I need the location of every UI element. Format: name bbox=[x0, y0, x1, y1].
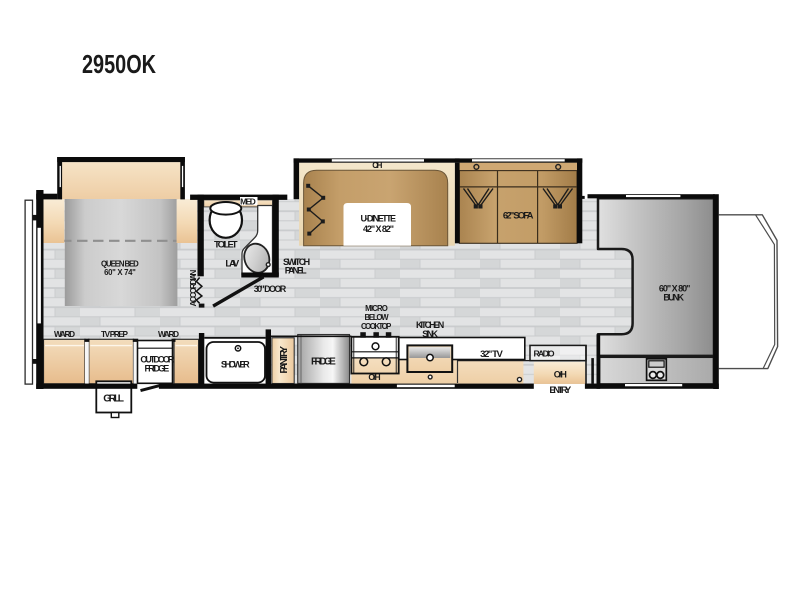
svg-text:FRIDGE: FRIDGE bbox=[311, 357, 336, 368]
svg-text:MED: MED bbox=[240, 197, 256, 207]
svg-text:GRILL: GRILL bbox=[103, 394, 124, 405]
svg-text:PANTRY: PANTRY bbox=[279, 346, 290, 374]
svg-text:COOKTOP: COOKTOP bbox=[361, 322, 391, 331]
svg-text:RADIO: RADIO bbox=[534, 348, 555, 358]
svg-text:BELOW: BELOW bbox=[364, 313, 389, 322]
svg-text:2950OK: 2950OK bbox=[82, 51, 156, 79]
svg-text:ACCORDIAN: ACCORDIAN bbox=[189, 269, 198, 306]
svg-text:O/H: O/H bbox=[554, 369, 567, 379]
svg-text:WARD: WARD bbox=[158, 330, 179, 339]
svg-text:LAV: LAV bbox=[225, 259, 240, 270]
svg-text:SHOWER: SHOWER bbox=[221, 360, 250, 370]
svg-text:MICRO: MICRO bbox=[365, 304, 388, 313]
svg-text:FRIDGE: FRIDGE bbox=[145, 364, 170, 374]
svg-text:ENTRY: ENTRY bbox=[549, 385, 572, 396]
svg-text:62" SOFA: 62" SOFA bbox=[503, 211, 534, 222]
svg-text:WARD: WARD bbox=[54, 330, 75, 339]
svg-text:42" X 82": 42" X 82" bbox=[363, 224, 394, 234]
svg-text:30" DOOR: 30" DOOR bbox=[254, 284, 287, 294]
svg-text:O/H: O/H bbox=[368, 372, 380, 382]
svg-text:O/H: O/H bbox=[372, 161, 382, 170]
svg-text:TOILET: TOILET bbox=[214, 239, 238, 250]
svg-text:SINK: SINK bbox=[422, 329, 438, 339]
svg-text:U-DINETTE: U-DINETTE bbox=[361, 214, 397, 224]
svg-text:32" TV: 32" TV bbox=[480, 349, 503, 360]
svg-text:PANEL: PANEL bbox=[285, 266, 307, 276]
svg-text:TV PREP: TV PREP bbox=[101, 330, 129, 339]
svg-text:BUNK: BUNK bbox=[663, 292, 684, 302]
svg-text:60" X 74": 60" X 74" bbox=[104, 268, 136, 277]
